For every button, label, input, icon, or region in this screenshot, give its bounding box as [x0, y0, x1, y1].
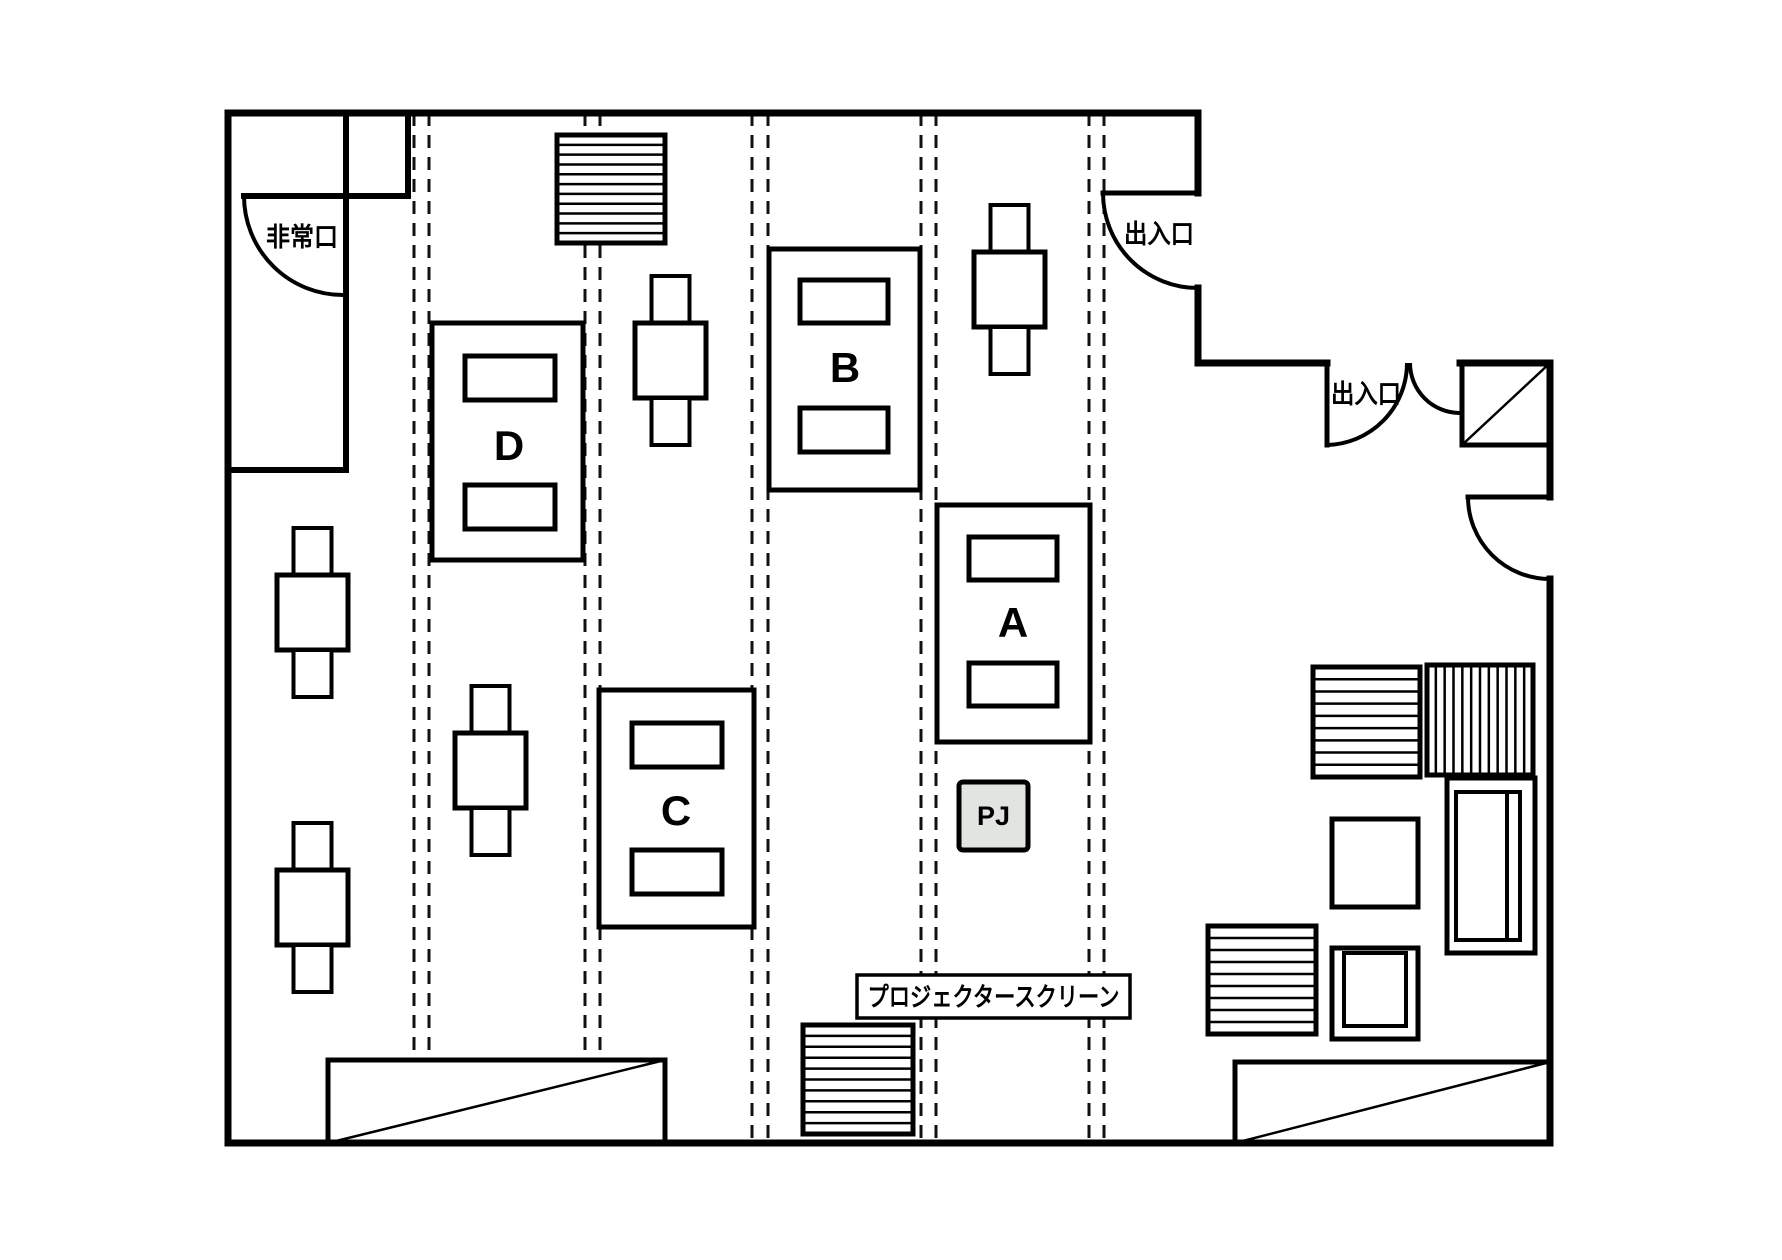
chair-3-front	[472, 808, 510, 855]
entrance-2-door-right-swing-arc	[1410, 363, 1460, 413]
table-d-label: D	[494, 422, 524, 469]
table-b-seat-slot	[800, 408, 888, 452]
table-b-seat-slot	[800, 280, 888, 323]
chair-1-seat	[974, 252, 1045, 327]
shelf-right-1	[1313, 667, 1420, 777]
side-table	[1332, 819, 1418, 907]
projector-screen-label: プロジェクタースクリーン	[868, 982, 1120, 1012]
projector-label: PJ	[977, 801, 1010, 831]
floor-plan-svg: DCBAPJ非常口出入口出入口プロジェクタースクリーン	[0, 0, 1782, 1260]
chair-2-backrest	[652, 276, 690, 323]
table-c-seat-slot	[632, 723, 722, 767]
chair-2-seat	[635, 323, 706, 398]
table-c-label: C	[661, 787, 691, 834]
shelf-right-3	[1208, 926, 1316, 1034]
chair-5-front	[294, 945, 332, 992]
emergency-exit-label: 非常口	[266, 222, 338, 252]
chair-1-front	[991, 327, 1029, 374]
chair-1-backrest	[991, 205, 1029, 252]
entrance-2-label: 出入口	[1331, 379, 1401, 409]
table-d-seat-slot	[465, 485, 555, 529]
chair-4-front	[294, 650, 332, 697]
chair-2-front	[652, 398, 690, 445]
floor-plan-page: DCBAPJ非常口出入口出入口プロジェクタースクリーン	[0, 0, 1782, 1260]
shelf-top	[557, 135, 665, 243]
table-a-seat-slot	[969, 663, 1057, 706]
right-wall-door-swing-arc	[1468, 497, 1550, 579]
table-c-seat-slot	[632, 850, 722, 894]
chair-3-backrest	[472, 686, 510, 733]
chair-5-seat	[277, 870, 348, 945]
table-d-seat-slot	[465, 356, 555, 400]
table-a-seat-slot	[969, 537, 1057, 580]
entrance-1-label: 出入口	[1124, 219, 1194, 249]
table-a-label: A	[998, 599, 1028, 646]
table-b-label: B	[830, 344, 860, 391]
chair-5-backrest	[294, 823, 332, 870]
chair-3-seat	[455, 733, 526, 808]
chair-4-backrest	[294, 528, 332, 575]
chair-4-seat	[277, 575, 348, 650]
